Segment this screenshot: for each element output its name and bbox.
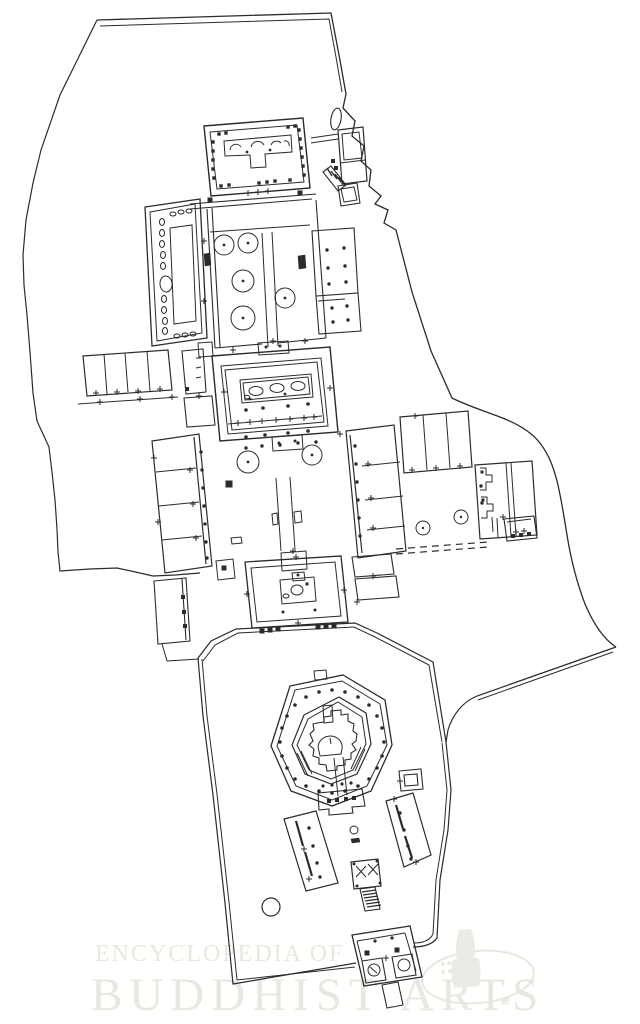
temple-plan-svg: [0, 0, 640, 1024]
scanned-plan-page: ENCYCLOPEDIA OF BUDDHIST ARTS: [0, 0, 640, 1024]
